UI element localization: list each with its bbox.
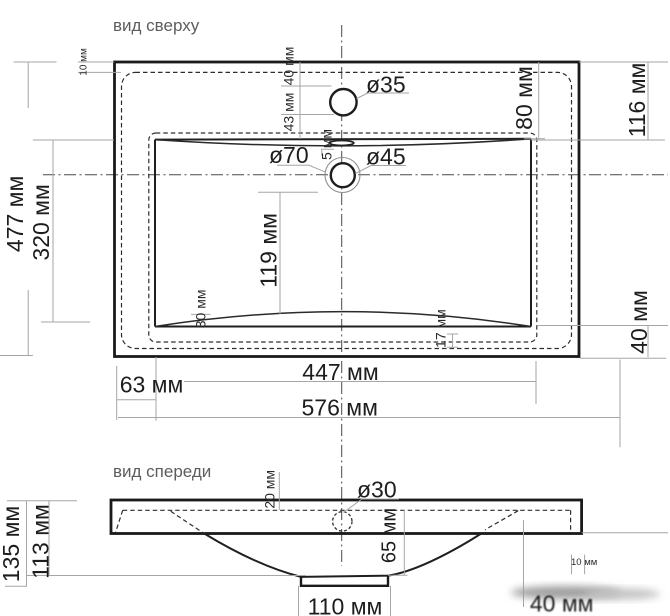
- svg-text:10 мм: 10 мм: [79, 48, 90, 76]
- svg-text:43 мм: 43 мм: [281, 93, 297, 132]
- svg-text:116 мм: 116 мм: [624, 63, 650, 138]
- svg-text:20 мм: 20 мм: [262, 470, 278, 509]
- svg-text:113 мм: 113 мм: [28, 504, 54, 579]
- svg-text:477 мм: 477 мм: [2, 176, 28, 252]
- svg-text:447 мм: 447 мм: [302, 359, 378, 385]
- svg-text:ø35: ø35: [366, 72, 406, 98]
- svg-text:вид сверху: вид сверху: [113, 16, 200, 35]
- svg-text:65 мм: 65 мм: [378, 508, 400, 563]
- svg-text:40 мм: 40 мм: [626, 290, 652, 354]
- svg-text:ø70: ø70: [269, 142, 309, 168]
- svg-text:17 мм: 17 мм: [433, 309, 449, 348]
- svg-text:5 мм: 5 мм: [319, 129, 335, 160]
- svg-text:40 мм: 40 мм: [281, 47, 297, 86]
- svg-text:40 мм: 40 мм: [530, 591, 594, 616]
- svg-text:576 мм: 576 мм: [302, 395, 378, 421]
- svg-text:119 мм: 119 мм: [256, 213, 282, 288]
- svg-text:110 мм: 110 мм: [308, 594, 383, 616]
- svg-text:63 мм: 63 мм: [120, 372, 184, 398]
- svg-text:320 мм: 320 мм: [28, 184, 54, 260]
- svg-text:10 мм: 10 мм: [571, 557, 597, 568]
- svg-text:135 мм: 135 мм: [0, 506, 24, 582]
- svg-text:80 мм: 80 мм: [511, 66, 537, 130]
- svg-text:вид спереди: вид спереди: [113, 462, 211, 481]
- svg-text:30 мм: 30 мм: [193, 290, 209, 329]
